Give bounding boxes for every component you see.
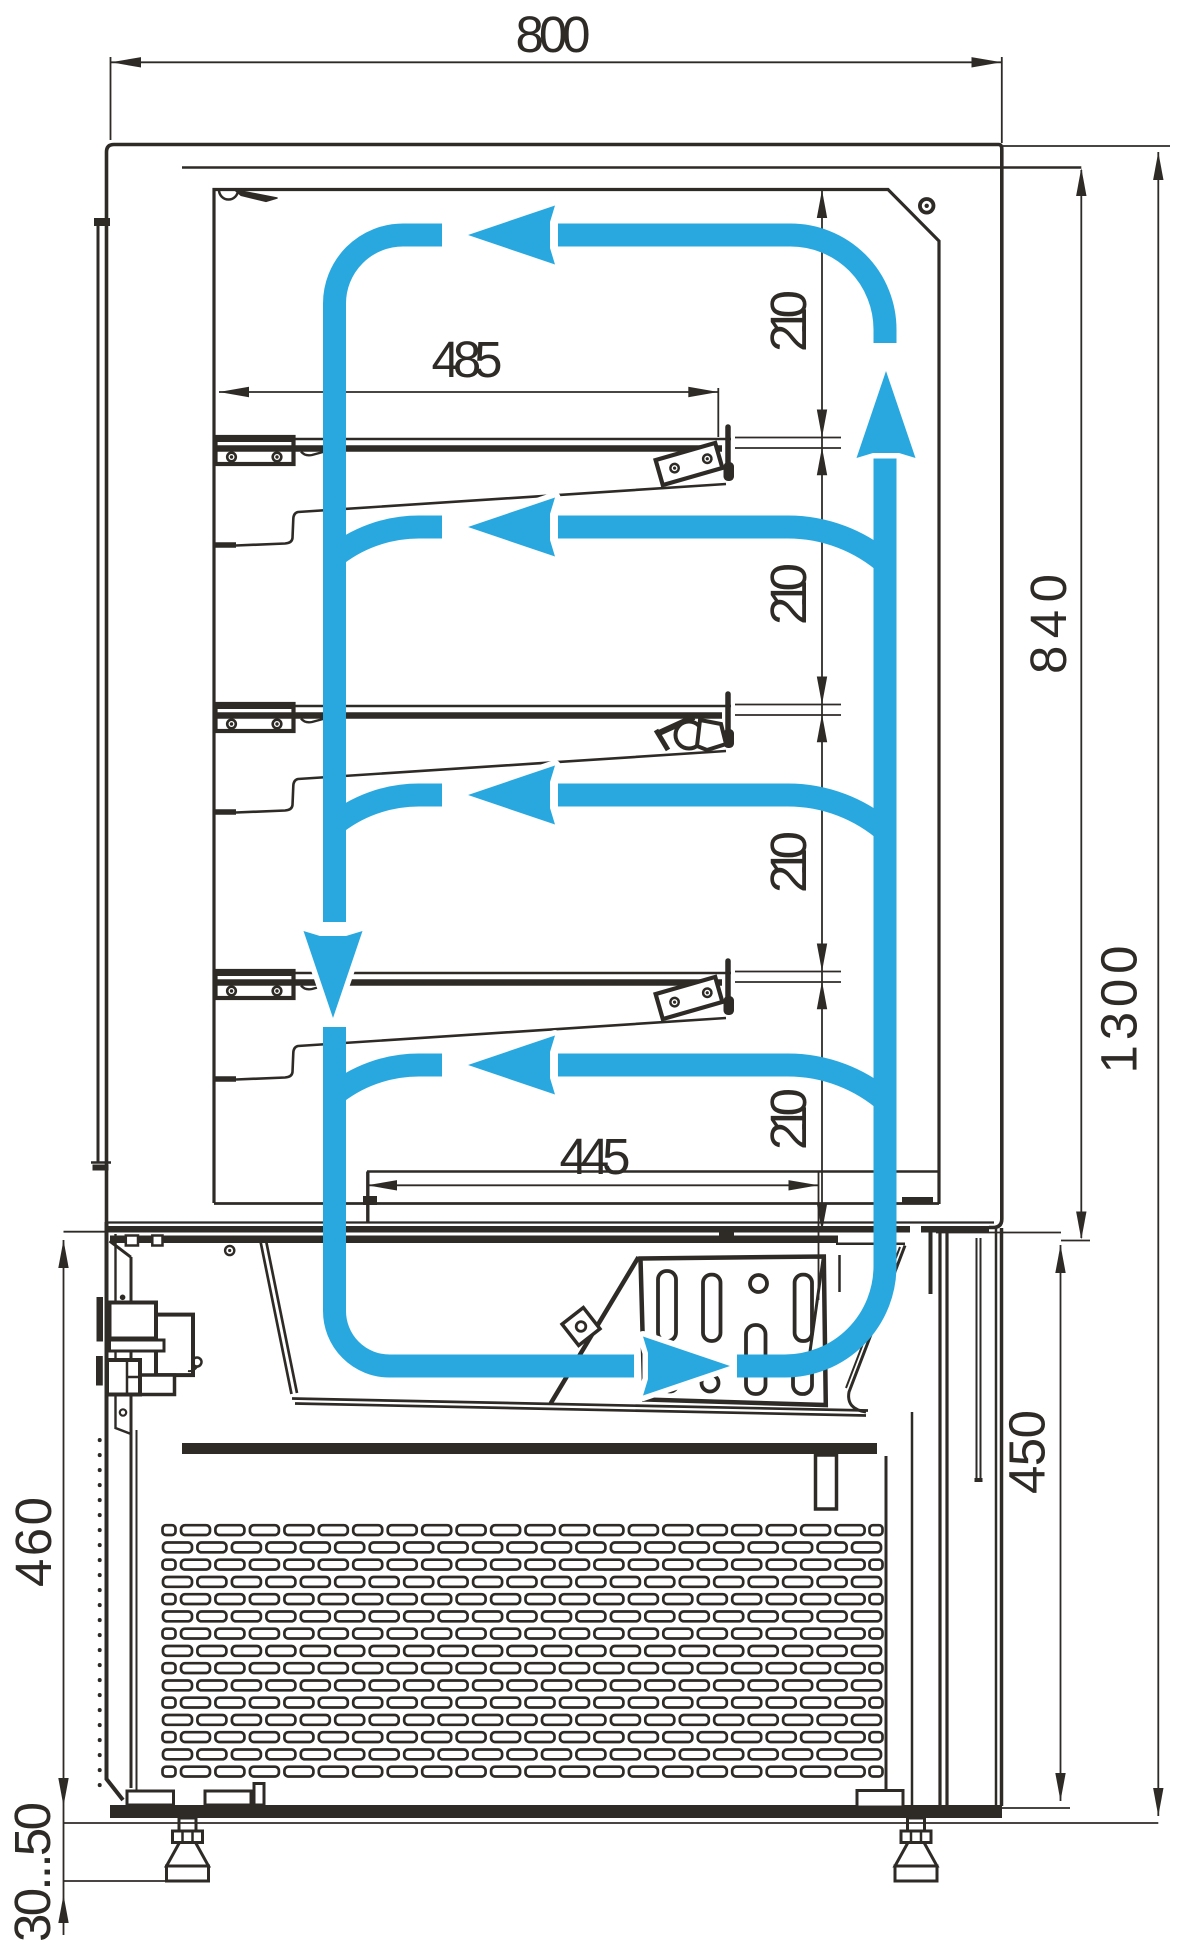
svg-text:30...50: 30...50 bbox=[4, 1802, 61, 1942]
svg-text:210: 210 bbox=[760, 831, 817, 893]
svg-text:840: 840 bbox=[1020, 574, 1077, 674]
svg-text:450: 450 bbox=[999, 1410, 1056, 1494]
svg-text:210: 210 bbox=[760, 290, 817, 352]
svg-text:800: 800 bbox=[516, 6, 591, 63]
svg-text:485: 485 bbox=[432, 331, 503, 388]
svg-text:210: 210 bbox=[760, 563, 817, 625]
svg-text:445: 445 bbox=[560, 1128, 631, 1185]
svg-text:460: 460 bbox=[5, 1497, 62, 1587]
svg-text:210: 210 bbox=[760, 1088, 817, 1150]
